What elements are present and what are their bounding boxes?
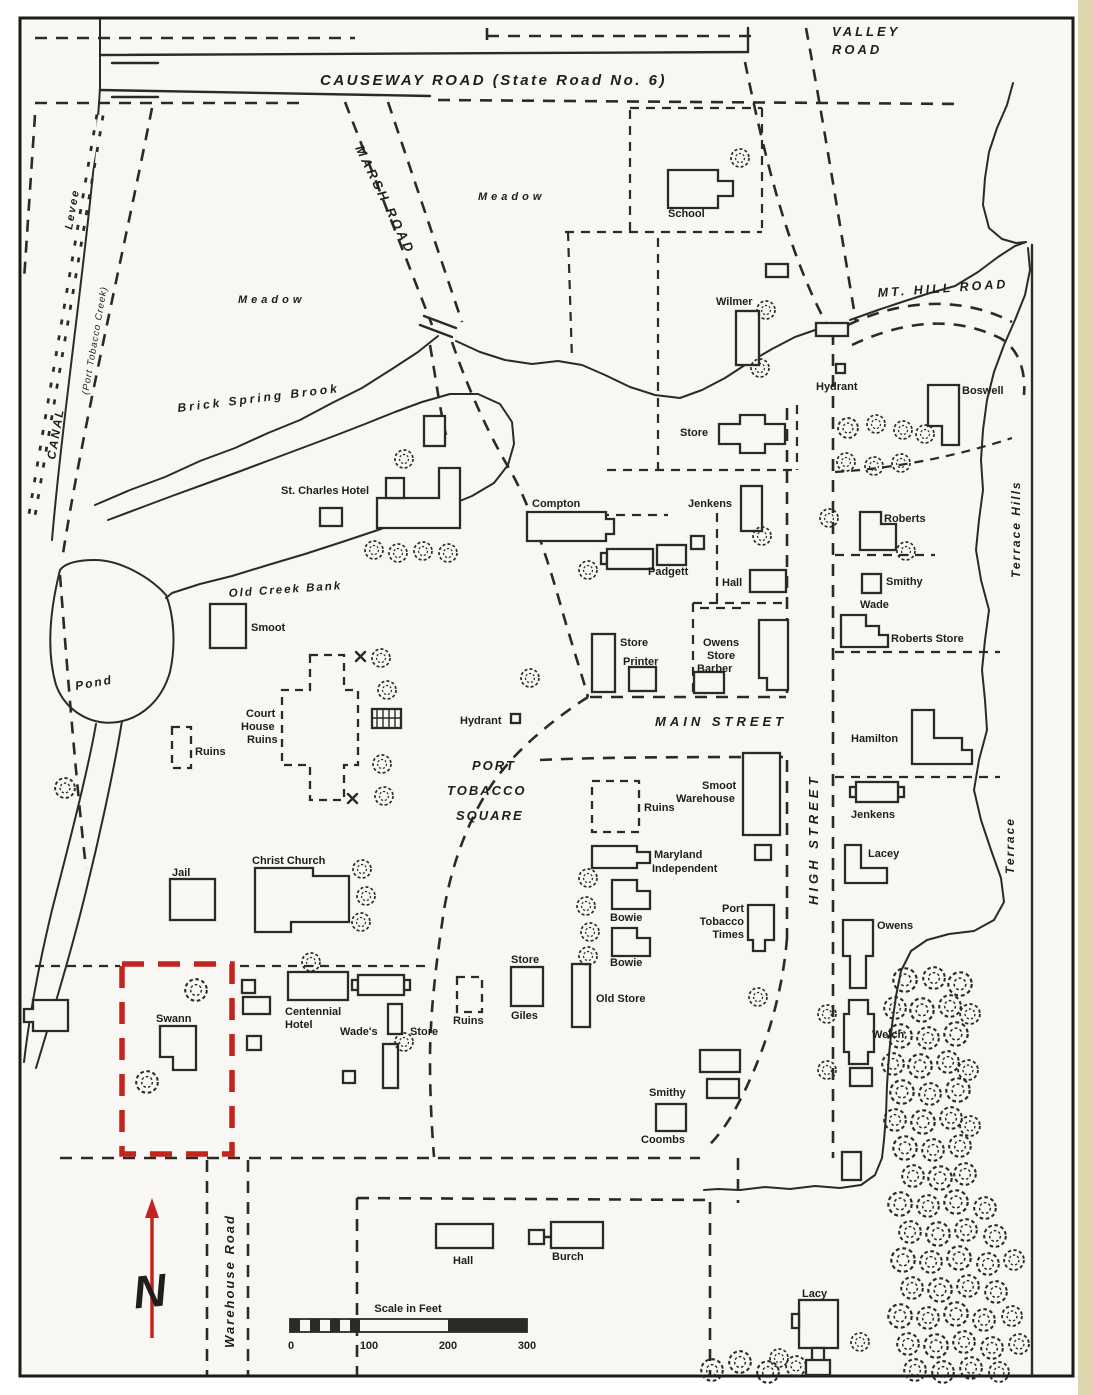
hydrant-north-icon xyxy=(836,364,845,373)
building-old-store xyxy=(572,964,590,1027)
label-ruins-west: Ruins xyxy=(195,746,226,758)
label-store-printer-2: Printer xyxy=(623,656,659,668)
label-roberts: Roberts xyxy=(884,513,926,525)
label-old-store: Old Store xyxy=(596,993,646,1005)
label-valley-road-2: ROAD xyxy=(832,42,882,57)
building-christ-church xyxy=(255,868,349,932)
map-frame xyxy=(20,18,1073,1376)
label-court-house-3: Ruins xyxy=(247,734,278,746)
label-square-1: PORT xyxy=(472,758,516,773)
label-pt-times-3: Times xyxy=(712,929,744,941)
label-wilmer: Wilmer xyxy=(716,296,753,308)
map-page: N Scale in Feet 0 100 200 300 CAUSEWAY R… xyxy=(0,0,1093,1395)
label-smoot-warehouse-1: Smoot xyxy=(702,780,737,792)
building-unlabeled xyxy=(424,416,445,446)
label-ruins-square: Ruins xyxy=(644,802,675,814)
label-main-street: MAIN STREET xyxy=(655,714,787,729)
label-owens-store-barber-1: Owens xyxy=(703,637,739,649)
building-hall-south xyxy=(436,1224,493,1248)
scan-edge-tint xyxy=(1078,0,1093,1395)
label-smoot: Smoot xyxy=(251,622,286,634)
north-label: N xyxy=(130,1263,169,1318)
label-store-printer-1: Store xyxy=(620,637,648,649)
label-padgett: Padgett xyxy=(648,566,689,578)
label-hydrant-north: Hydrant xyxy=(816,381,858,393)
label-court-house-1: Court xyxy=(246,708,276,720)
building-smoot xyxy=(210,604,246,648)
label-warehouse-road: Warehouse Road xyxy=(222,1214,237,1348)
label-pt-times-1: Port xyxy=(722,903,744,915)
building-wades xyxy=(388,1004,402,1034)
label-court-house-2: House xyxy=(241,721,275,733)
label-causeway-road: CAUSEWAY ROAD (State Road No. 6) xyxy=(320,72,667,89)
label-smithy-wade-2: Wade xyxy=(860,599,889,611)
label-square-2: TOBACCO xyxy=(447,783,526,798)
label-compton: Compton xyxy=(532,498,581,510)
label-wades-store: Store xyxy=(410,1026,438,1038)
label-christ-church: Christ Church xyxy=(252,855,326,867)
label-jenkens-east: Jenkens xyxy=(851,809,895,821)
monument-ruin-icon xyxy=(372,709,401,728)
building-st-charles-wing xyxy=(386,478,404,498)
label-jenkens-main: Jenkens xyxy=(688,498,732,510)
building-jenkens-east xyxy=(850,782,904,802)
label-high-street: HIGH STREET xyxy=(806,774,821,905)
label-centennial-2: Hotel xyxy=(285,1019,313,1031)
label-terrace: Terrace xyxy=(1003,817,1017,874)
hydrant-square-icon xyxy=(511,714,520,723)
label-lacy: Lacy xyxy=(802,1288,828,1300)
label-hall-south: Hall xyxy=(453,1255,473,1267)
label-meadow-lower: Meadow xyxy=(238,294,305,306)
building-wilmer xyxy=(736,311,759,365)
scale-tick-300: 300 xyxy=(518,1340,536,1352)
scale-tick-100: 100 xyxy=(360,1340,378,1352)
label-hydrant-square: Hydrant xyxy=(460,715,502,727)
building-unlabeled xyxy=(766,264,788,277)
label-jail: Jail xyxy=(172,867,190,879)
label-owens-store-barber-2: Store xyxy=(707,650,735,662)
label-valley-road-1: VALLEY xyxy=(832,24,900,39)
building-jenkens-main xyxy=(741,486,762,531)
label-store-north: Store xyxy=(680,427,708,439)
building-jail xyxy=(170,879,215,920)
label-pt-times-2: Tobacco xyxy=(700,916,745,928)
label-bowie-lower: Bowie xyxy=(610,957,642,969)
label-burch: Burch xyxy=(552,1251,584,1263)
label-owens-store-barber-3: Barber xyxy=(697,663,733,675)
label-smithy-wade-1: Smithy xyxy=(886,576,924,588)
building-unlabeled xyxy=(842,1152,861,1180)
port-tobacco-map: N Scale in Feet 0 100 200 300 CAUSEWAY R… xyxy=(0,0,1093,1395)
building-compton xyxy=(527,512,614,541)
scale-tick-200: 200 xyxy=(439,1340,457,1352)
label-st-charles-hotel: St. Charles Hotel xyxy=(281,485,369,497)
label-welch: Welch xyxy=(872,1029,904,1041)
building-unlabeled xyxy=(320,508,342,526)
label-smithy-coombs-2: Coombs xyxy=(641,1134,685,1146)
label-meadow-upper: Meadow xyxy=(478,191,545,203)
label-maryland-independent-1: Maryland xyxy=(654,849,702,861)
label-smithy-coombs-1: Smithy xyxy=(649,1087,687,1099)
scale-tick-0: 0 xyxy=(288,1340,294,1352)
scale-title: Scale in Feet xyxy=(374,1303,442,1315)
label-wades: Wade's xyxy=(340,1026,378,1038)
building-smithy-wade xyxy=(862,574,881,593)
label-school: School xyxy=(668,208,705,220)
label-lacey: Lacey xyxy=(868,848,900,860)
label-square-3: SQUARE xyxy=(456,808,524,823)
label-smoot-warehouse-2: Warehouse xyxy=(676,793,735,805)
label-hall-main: Hall xyxy=(722,577,742,589)
label-boswell: Boswell xyxy=(962,385,1004,397)
label-bowie-upper: Bowie xyxy=(610,912,642,924)
mt-hill-bridge xyxy=(816,323,848,336)
label-giles-store-1: Store xyxy=(511,954,539,966)
label-owens-east: Owens xyxy=(877,920,913,932)
building-centennial-hotel xyxy=(288,972,348,1000)
label-giles-store-2: Giles xyxy=(511,1010,538,1022)
label-terrace-hills: Terrace Hills xyxy=(1009,480,1023,578)
label-ruins-giles: Ruins xyxy=(453,1015,484,1027)
label-maryland-independent-2: Independent xyxy=(652,863,718,875)
label-centennial-1: Centennial xyxy=(285,1006,341,1018)
label-hamilton: Hamilton xyxy=(851,733,898,745)
label-swann: Swann xyxy=(156,1013,192,1025)
label-roberts-store: Roberts Store xyxy=(891,633,964,645)
building-giles xyxy=(511,967,543,1006)
building-hall-main xyxy=(750,570,786,592)
